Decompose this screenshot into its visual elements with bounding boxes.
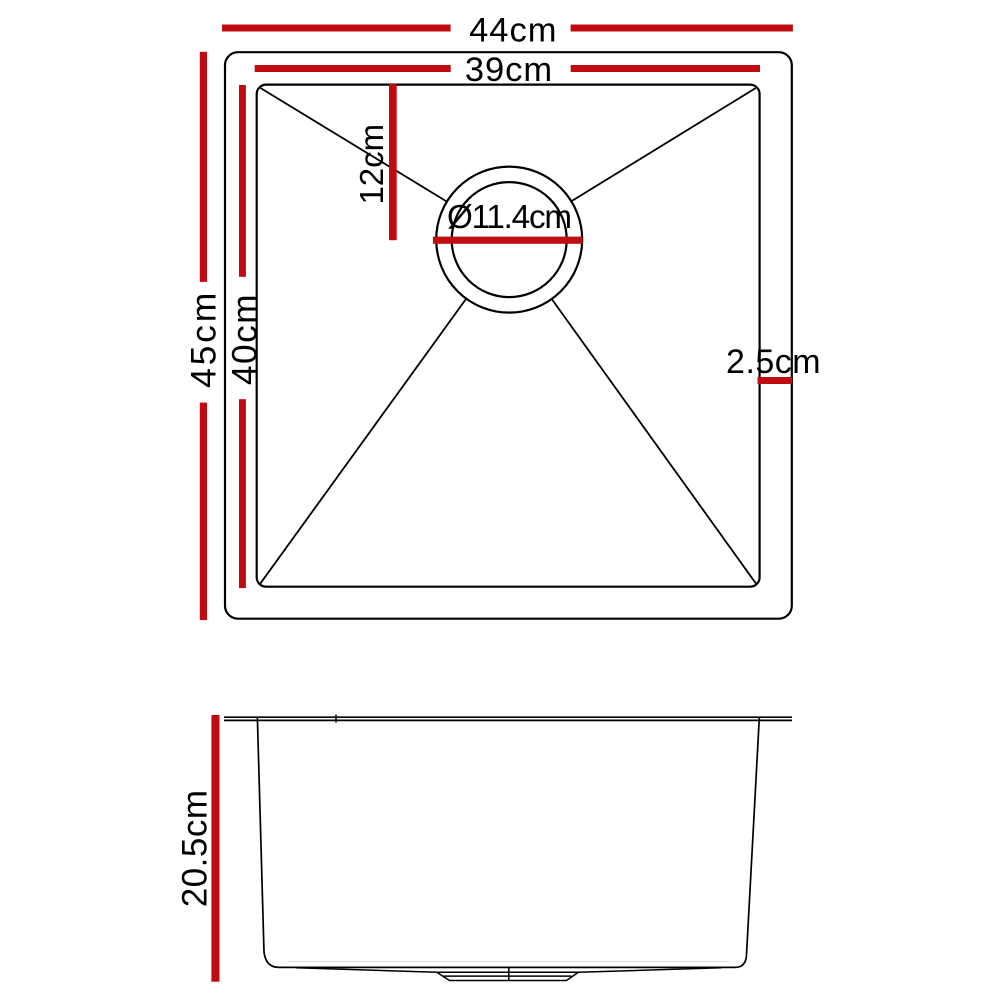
svg-text:20.5cm: 20.5cm <box>175 790 214 908</box>
svg-text:45cm: 45cm <box>184 290 224 388</box>
svg-text:12cm: 12cm <box>353 124 390 205</box>
svg-text:39cm: 39cm <box>465 51 553 89</box>
svg-text:2.5cm: 2.5cm <box>726 343 821 381</box>
svg-text:40cm: 40cm <box>226 293 265 385</box>
svg-text:44cm: 44cm <box>469 12 557 50</box>
svg-text:Ø11.4cm: Ø11.4cm <box>447 199 571 236</box>
